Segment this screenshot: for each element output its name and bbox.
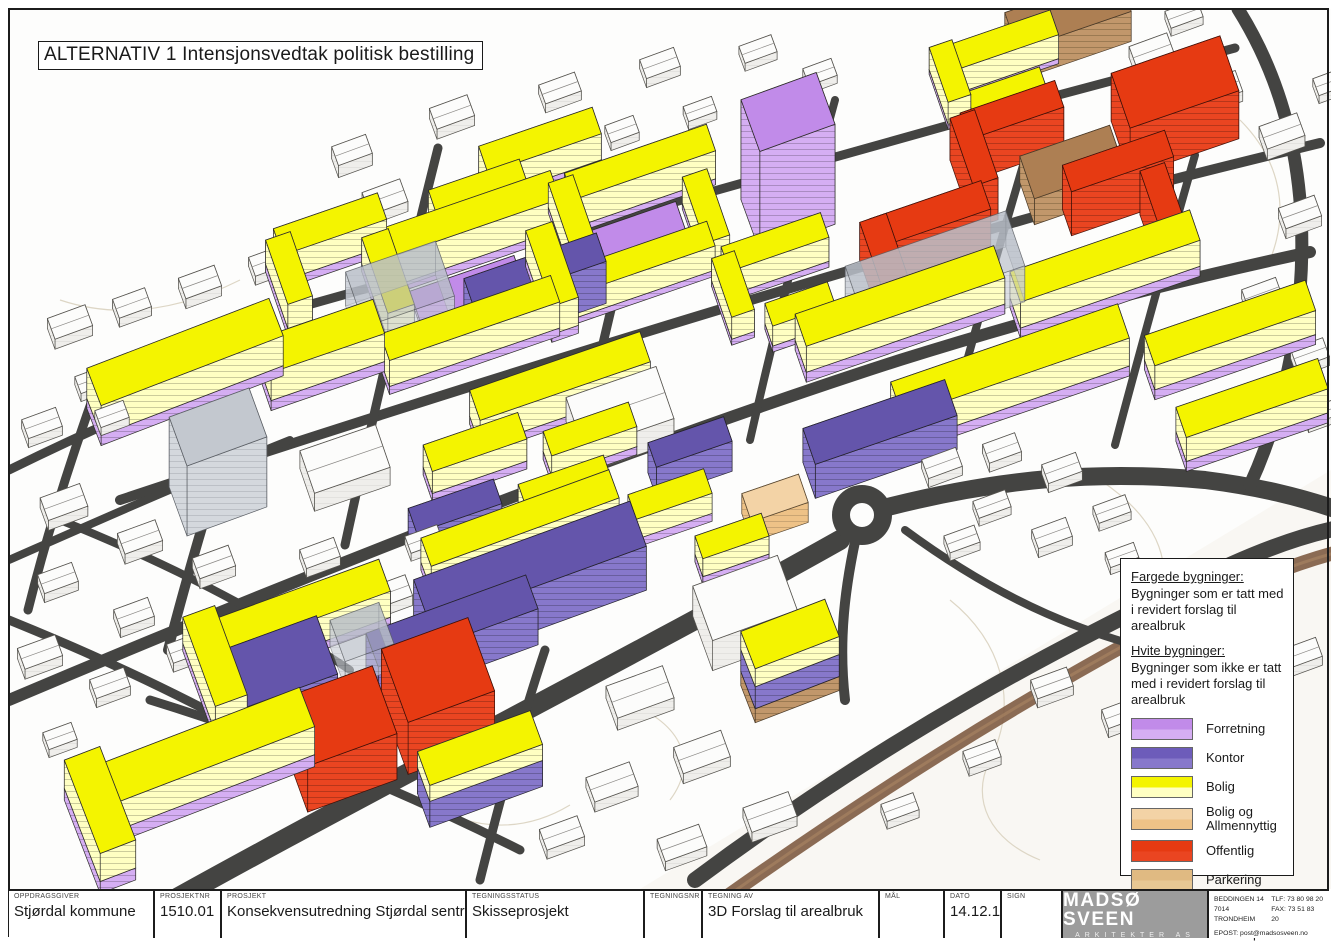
field-value: 14.12.15 xyxy=(950,903,996,920)
legend-item: Bolig og Allmennyttig xyxy=(1131,805,1287,834)
legend-item-label: Bolig xyxy=(1206,780,1235,794)
address-line1: BEDDINGEN 14 xyxy=(1214,895,1264,905)
field-label: TEGNINGSSTATUS xyxy=(472,893,639,900)
titleblock-field-prosjekt: PROSJEKTKonsekvensutredning Stjørdal sen… xyxy=(222,891,467,938)
legend-item: Kontor xyxy=(1131,747,1287,769)
field-label: TEGNINGSNR xyxy=(650,893,697,900)
titleblock-field-dato: DATO14.12.15 xyxy=(945,891,1002,938)
legend-swatch xyxy=(1131,718,1193,740)
titleblock-field-prosjektnr: PROSJEKTNR1510.01 xyxy=(155,891,222,938)
drawing-sheet: ALTERNATIV 1 Intensjonsvedtak politisk b… xyxy=(0,0,1338,944)
field-label: SIGN xyxy=(1007,893,1057,900)
field-label: MÅL xyxy=(885,893,939,900)
legend-colored-description: Bygninger som er tatt med i revidert for… xyxy=(1131,586,1287,634)
fax: FAX: 73 51 83 20 xyxy=(1271,905,1323,925)
field-label: PROSJEKTNR xyxy=(160,893,216,900)
email: EPOST: post@madsosveen.no xyxy=(1214,929,1323,938)
field-label: TEGNING AV xyxy=(708,893,874,900)
legend-item-label: Forretning xyxy=(1206,722,1265,736)
titleblock-field-tegning-av: TEGNING AV3D Forslag til arealbruk xyxy=(703,891,880,938)
legend-white-description: Bygninger som ikke er tatt med i revider… xyxy=(1131,660,1287,708)
logo-subtitle: ARKITEKTER AS xyxy=(1075,932,1195,939)
field-value: 1510.01 xyxy=(160,903,216,920)
legend-item: Offentlig xyxy=(1131,840,1287,862)
titleblock-field-m-l: MÅL xyxy=(880,891,945,938)
titleblock-field-oppdragsgiver: OPPDRAGSGIVERStjørdal kommune xyxy=(9,891,155,938)
field-label: PROSJEKT xyxy=(227,893,461,900)
architect-contact: BEDDINGEN 14TLF: 73 80 98 20 7014 TRONDH… xyxy=(1209,891,1327,938)
field-label: OPPDRAGSGIVER xyxy=(14,893,149,900)
phone: TLF: 73 80 98 20 xyxy=(1271,895,1323,905)
legend-item-label: Bolig og Allmennyttig xyxy=(1206,805,1287,834)
field-value: Skisseprosjekt xyxy=(472,903,639,920)
drawing-title: ALTERNATIV 1 Intensjonsvedtak politisk b… xyxy=(38,41,483,70)
titleblock: OPPDRAGSGIVERStjørdal kommunePROSJEKTNR1… xyxy=(9,889,1329,938)
titleblock-field-tegningsstatus: TEGNINGSSTATUSSkisseprosjekt xyxy=(467,891,645,938)
titleblock-field-sign: SIGN xyxy=(1002,891,1063,938)
logo-name: MADSØ SVEEN xyxy=(1063,891,1207,929)
legend-swatch xyxy=(1131,808,1193,830)
legend-colored-header: Fargede bygninger: xyxy=(1131,569,1287,585)
legend-item-label: Kontor xyxy=(1206,751,1244,765)
legend-swatch xyxy=(1131,747,1193,769)
titleblock-field-tegningsnr: TEGNINGSNR xyxy=(645,891,703,938)
field-value: 3D Forslag til arealbruk xyxy=(708,903,874,920)
legend-item-label: Offentlig xyxy=(1206,844,1254,858)
legend: Fargede bygninger: Bygninger som er tatt… xyxy=(1120,558,1294,876)
address-line2: 7014 TRONDHEIM xyxy=(1214,905,1271,925)
legend-item-label: Parkering xyxy=(1206,873,1262,887)
field-label: DATO xyxy=(950,893,996,900)
legend-swatch xyxy=(1131,776,1193,798)
legend-item: Bolig xyxy=(1131,776,1287,798)
legend-swatch xyxy=(1131,840,1193,862)
field-value: Konsekvensutredning Stjørdal sentrum xyxy=(227,903,461,920)
field-value: Stjørdal kommune xyxy=(14,903,149,920)
legend-white-header: Hvite bygninger: xyxy=(1131,643,1287,659)
architect-logo: MADSØ SVEEN ARKITEKTER AS xyxy=(1063,891,1209,938)
legend-item: Forretning xyxy=(1131,718,1287,740)
